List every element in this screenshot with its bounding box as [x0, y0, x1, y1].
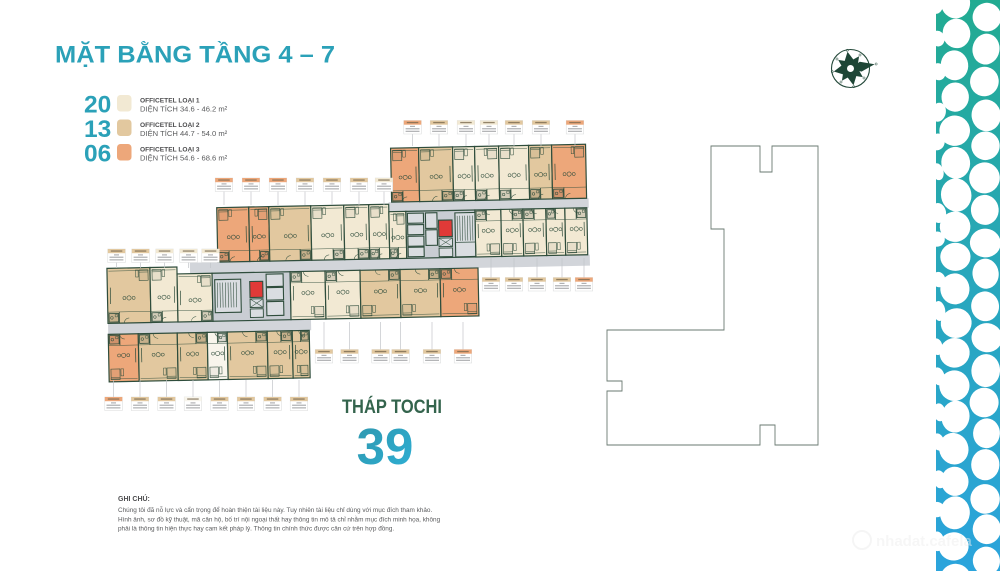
svg-text:20: 20 [84, 92, 111, 119]
svg-text:39: 39 [357, 418, 414, 475]
svg-text:THÁP TOCHI: THÁP TOCHI [342, 395, 442, 418]
svg-text:OFFICETEL LOẠI 2: OFFICETEL LOẠI 2 [140, 122, 200, 129]
svg-text:DIỆN TÍCH 44.7 - 54.0 m²: DIỆN TÍCH 44.7 - 54.0 m² [140, 129, 228, 138]
svg-text:Hình ảnh, sơ đồ kỹ thuật, mã c: Hình ảnh, sơ đồ kỹ thuật, mã căn hộ, bố … [118, 515, 441, 524]
svg-text:MẶT BẰNG TẦNG 4 – 7: MẶT BẰNG TẦNG 4 – 7 [55, 41, 335, 69]
svg-text:06: 06 [84, 141, 111, 168]
svg-text:DIỆN TÍCH 54.6 - 68.6 m²: DIỆN TÍCH 54.6 - 68.6 m² [140, 154, 228, 163]
svg-text:GHI CHÚ:: GHI CHÚ: [118, 494, 150, 503]
svg-text:13: 13 [84, 116, 111, 143]
svg-text:OFFICETEL LOẠI 3: OFFICETEL LOẠI 3 [140, 147, 200, 154]
svg-text:OFFICETEL LOẠI 1: OFFICETEL LOẠI 1 [140, 98, 200, 105]
svg-text:nhadat.cafela: nhadat.cafela [876, 533, 973, 550]
svg-text:DIỆN TÍCH 34.6 - 46.2 m²: DIỆN TÍCH 34.6 - 46.2 m² [140, 105, 228, 114]
svg-text:phải là thông tin hiện thực ha: phải là thông tin hiện thực hay cam kết … [118, 524, 394, 533]
svg-text:Chúng tôi đã nỗ lực và cẩn trọ: Chúng tôi đã nỗ lực và cẩn trọng để hoàn… [118, 505, 432, 514]
